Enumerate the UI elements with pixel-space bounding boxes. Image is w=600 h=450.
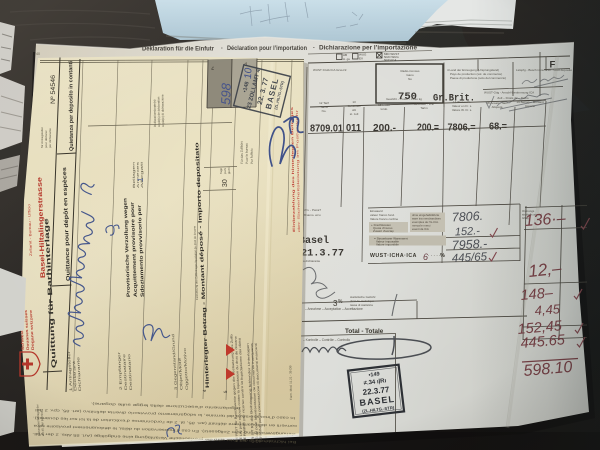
svg-text:No: No [408,77,412,81]
svg-text:40: 40 [36,52,40,56]
svg-text:WUST ICHA ICA Grss-Nr: WUST ICHA ICA Grss-Nr [313,68,347,72]
svg-text:copia(e) di dichiarazione: copia(e) di dichiarazione [160,94,165,127]
svg-text:200.-: 200.- [373,123,396,134]
svg-text:esenti da ICA: esenti da ICA [412,227,429,231]
svg-text:Valore franco confine: Valore franco confine [370,217,398,221]
svg-text:1: 1 [136,178,145,183]
svg-text:Per l’ufficio: Per l’ufficio [250,148,254,164]
svg-text:Fr.: Fr. [211,66,215,70]
svg-text:598: 598 [218,82,234,105]
svg-text:Deklaration für die Einfutr: Deklaration für die Einfutr [142,46,215,53]
svg-text:No.: No. [322,109,327,113]
svg-text:per dichiarante: per dichiarante [48,128,52,148]
svg-text:200.=: 200.= [417,123,439,134]
svg-text:Tarim: Tarim [420,106,428,110]
svg-text:Pour le bureau: Pour le bureau [245,143,249,164]
svg-text:giorni: giorni [227,167,231,174]
svg-text:Form. Mod. 11.21 - 39 DB: Form. Mod. 11.21 - 39 DB [288,366,293,401]
svg-text:Valore imponibile: Valore imponibile [376,243,399,247]
svg-text:Allegati: Allegati [140,161,144,188]
svg-text:tassa di statistica: tassa di statistica [350,303,373,307]
svg-text:lordo: lordo [381,107,388,111]
svg-text:Quietanza per deposito in cont: Quietanza per deposito in contanti [68,60,75,151]
svg-text:Nº 54546: Nº 54546 [50,75,57,104]
svg-text:6: 6 [423,252,428,262]
svg-text:Déclaration pour l’importation: Déclaration pour l’importation [227,45,307,52]
svg-text:Dichiarazione per l’importazio: Dichiarazione per l’importazione [319,45,417,52]
svg-text:Valore W. Fr. s.: Valore W. Fr. s. [452,108,472,112]
svg-text:·: · [313,45,315,52]
svg-text:30: 30 [222,179,229,187]
svg-text:EV: EV [359,57,363,61]
svg-text:%: % [338,299,343,305]
svg-text:st. zoll: st. zoll [350,112,359,116]
svg-text:Zusatz d’acciap: Zusatz d’acciap [373,229,394,233]
svg-text:10: 10 [243,67,254,79]
svg-text:%: % [440,253,445,259]
svg-text:Gewicht – Poids – Peso kg: Gewicht – Poids – Peso kg [386,97,422,101]
svg-text:21.3.77: 21.3.77 [301,249,344,260]
svg-text:– Kontrolle – Contrôle – Contr: – Kontrolle – Contrôle – Controllo [303,338,350,342]
svg-text:A. gu: A. gu [343,57,350,61]
svg-text:WUST·ICHA·ICA: WUST·ICHA·ICA [370,253,417,259]
svg-text:Für das Zollbüro: Für das Zollbüro [240,141,244,165]
svg-text:·: · [221,45,223,52]
